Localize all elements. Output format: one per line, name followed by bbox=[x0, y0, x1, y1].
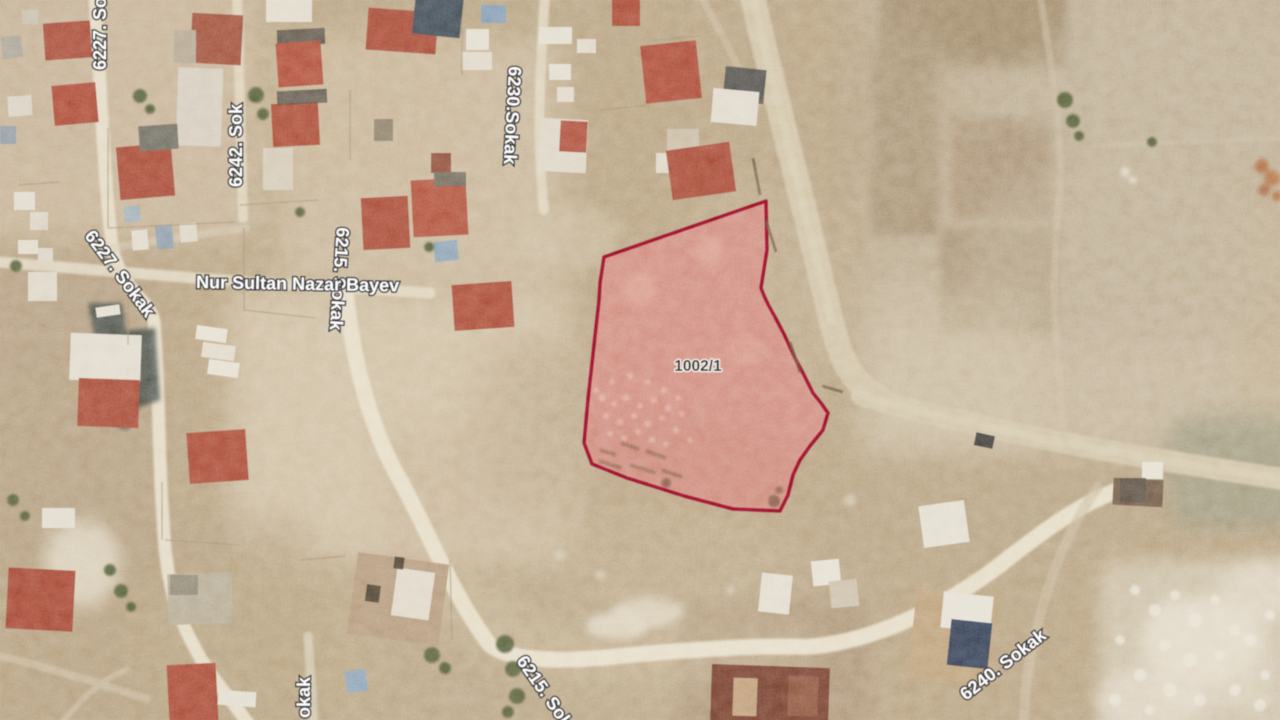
svg-text:6227. Sok: 6227. Sok bbox=[90, 0, 110, 70]
svg-text:6242. Sok: 6242. Sok bbox=[226, 103, 246, 187]
svg-text:okak: okak bbox=[294, 676, 314, 718]
svg-text:Nur Sultan Nazar Bayev: Nur Sultan Nazar Bayev bbox=[196, 272, 399, 296]
svg-text:1002/1: 1002/1 bbox=[674, 358, 722, 375]
